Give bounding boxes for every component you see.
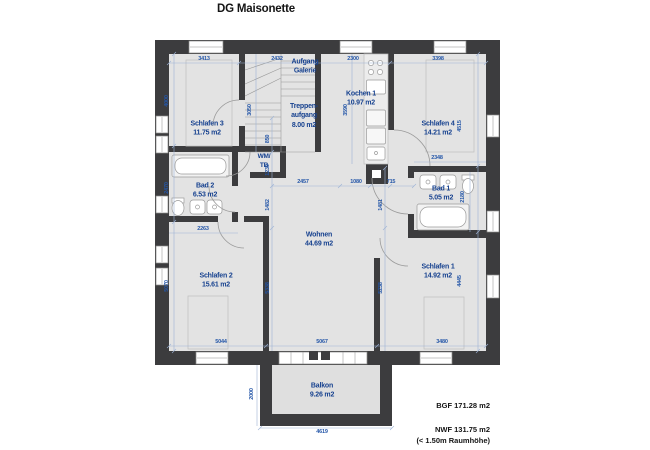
- nwf-area-text: NWF 131.75 m2: [435, 425, 490, 434]
- room-name: Kochen 1: [346, 90, 376, 99]
- dim-right-schlafen4: 4515: [457, 120, 463, 131]
- room-label-schlafen1: Schlafen 1 14.92 m2: [421, 263, 454, 282]
- floorplan-page: DG Maisonette Schlafen 3 11.75 m2 Aufgan…: [0, 0, 650, 450]
- label-line: Treppen-: [290, 102, 318, 111]
- dim-top-kochen: 2300: [347, 56, 358, 62]
- bathtub-icon: [417, 204, 469, 230]
- bathtub-icon: [172, 155, 229, 177]
- room-label-bad2: Bad 2 6.53 m2: [193, 182, 217, 201]
- room-label-schlafen2: Schlafen 2 15.61 m2: [199, 272, 232, 291]
- dim-mid-715: 715: [387, 179, 396, 185]
- room-area: 14.21 m2: [421, 129, 454, 138]
- room-label-bad1: Bad 1 5.05 m2: [429, 185, 453, 204]
- dim-chain-1481: 1481: [378, 199, 384, 210]
- dim-bad2-width: 2263: [197, 226, 208, 232]
- room-area: 8.00 m2: [290, 121, 318, 130]
- dim-right-bad1: 2180: [460, 191, 466, 202]
- dim-chain-5338: 5338: [265, 282, 271, 293]
- room-label-kochen1: Kochen 1 10.97 m2: [346, 90, 376, 109]
- label-line: Galerie: [292, 67, 319, 76]
- room-name: Balkon: [310, 382, 334, 391]
- room-label-treppenaufgang: Treppen- aufgang 8.00 m2: [290, 102, 318, 130]
- dim-chain-1230: 1230: [265, 164, 271, 175]
- dim-left-bad2: 2470: [164, 182, 170, 193]
- room-label-aufgang-galerie: Aufgang Galerie: [292, 58, 319, 77]
- dim-left-schlafen3: 4000: [164, 95, 170, 106]
- dim-top-schlafen3: 3413: [198, 56, 209, 62]
- dim-top-treppe: 2432: [271, 56, 282, 62]
- dim-chain-850: 850: [265, 135, 271, 144]
- room-area: 11.75 m2: [190, 129, 223, 138]
- room-area: 10.97 m2: [346, 99, 376, 108]
- label-line: Aufgang: [292, 58, 319, 67]
- room-label-schlafen3: Schlafen 3 11.75 m2: [190, 120, 223, 139]
- room-name: Schlafen 1: [421, 263, 454, 272]
- room-label-balkon: Balkon 9.26 m2: [310, 382, 334, 401]
- room-name: Wohnen: [305, 231, 333, 240]
- dim-mid-2457: 2457: [297, 179, 308, 185]
- room-label-schlafen4: Schlafen 4 14.21 m2: [421, 120, 454, 139]
- dim-chain-1482: 1482: [265, 199, 271, 210]
- bgf-area-text: BGF 171.28 m2: [436, 401, 490, 410]
- raumhoehe-note-text: (< 1.50m Raumhöhe): [416, 436, 490, 445]
- dim-balkon-depth: 2000: [249, 388, 255, 399]
- room-name: Bad 2: [193, 182, 217, 191]
- page-title: DG Maisonette: [217, 3, 295, 15]
- room-area: 9.26 m2: [310, 391, 334, 400]
- room-label-wohnen: Wohnen 44.69 m2: [305, 231, 333, 250]
- room-name: Bad 1: [429, 185, 453, 194]
- dim-mid-1080: 1080: [350, 179, 361, 185]
- dim-chain-5238: 5238: [378, 282, 384, 293]
- room-area: 5.05 m2: [429, 194, 453, 203]
- room-area: 15.61 m2: [199, 281, 232, 290]
- label-line: WM/: [258, 153, 271, 162]
- kitchen-counter: [364, 54, 388, 164]
- dim-balkon-width: 4619: [316, 429, 327, 435]
- dim-bottom-schlafen2: 5044: [215, 339, 226, 345]
- room-area: 6.53 m2: [193, 191, 217, 200]
- room-area: 14.92 m2: [421, 272, 454, 281]
- dim-left-schlafen2: 5070: [164, 280, 170, 291]
- dim-stair-height: 3050: [247, 104, 253, 115]
- dim-bad1-width: 2348: [431, 155, 442, 161]
- dim-top-schlafen4: 3398: [432, 56, 443, 62]
- label-line: aufgang: [290, 111, 318, 120]
- kitchen-sink-icon: [367, 147, 385, 160]
- room-name: Schlafen 4: [421, 120, 454, 129]
- dim-bottom-schlafen1: 3480: [436, 339, 447, 345]
- dim-kochen-height: 3590: [343, 104, 349, 115]
- room-name: Schlafen 2: [199, 272, 232, 281]
- dim-right-schlafen1: 4445: [457, 275, 463, 286]
- room-area: 44.69 m2: [305, 240, 333, 249]
- room-name: Schlafen 3: [190, 120, 223, 129]
- dim-bottom-wohnen: 5067: [316, 339, 327, 345]
